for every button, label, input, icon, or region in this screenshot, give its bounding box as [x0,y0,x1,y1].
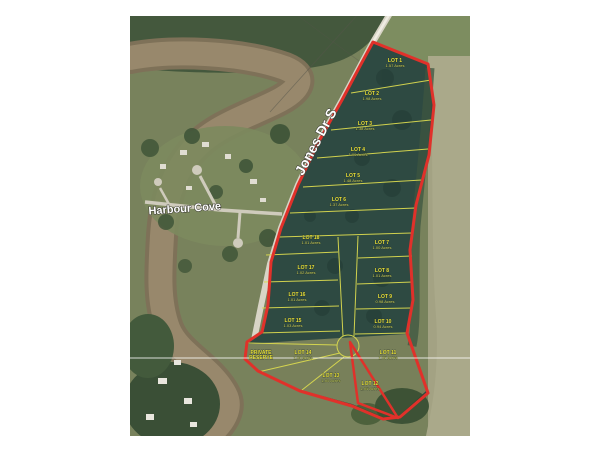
lot-5-acres: 1.48 Acres [344,178,363,183]
lot-8-acres: 1.01 Acres [373,273,392,278]
lot-16-acres: 1.01 Acres [288,297,307,302]
lot-14-acres: 1.00 Acres [294,355,313,360]
plat-map-page: { "map": { "description": "Aerial plat m… [0,0,600,450]
lot-6-acres: 1.37 Acres [330,202,349,207]
lot-4-acres: 1.99 Acres [349,152,368,157]
lot-11-acres: 1.05 Acres [379,355,398,360]
lot-15-acres: 1.03 Acres [284,323,303,328]
lot-1-acres: 1.57 Acres [386,63,405,68]
lot-7-acres: 1.00 Acres [373,245,392,250]
lot-18-acres: 1.01 Acres [302,240,321,245]
reserve-label-line2: RESERVE [249,355,273,361]
aerial-photo: LOT 1 1.57 Acres LOT 2 1.98 Acres LOT 3 … [130,16,470,436]
lot-10-acres: 0.94 Acres [374,324,393,329]
lot-3-acres: 1.38 Acres [356,126,375,131]
lot-2-acres: 1.98 Acres [363,96,382,101]
map-canvas: LOT 1 1.57 Acres LOT 2 1.98 Acres LOT 3 … [130,16,470,436]
lot-13-acres: 1.00 Acres [322,378,341,383]
lot-17-acres: 1.02 Acres [297,270,316,275]
lot-12-acres: 1.05 Acres [361,386,380,391]
lot-9-acres: 0.98 Acres [376,299,395,304]
